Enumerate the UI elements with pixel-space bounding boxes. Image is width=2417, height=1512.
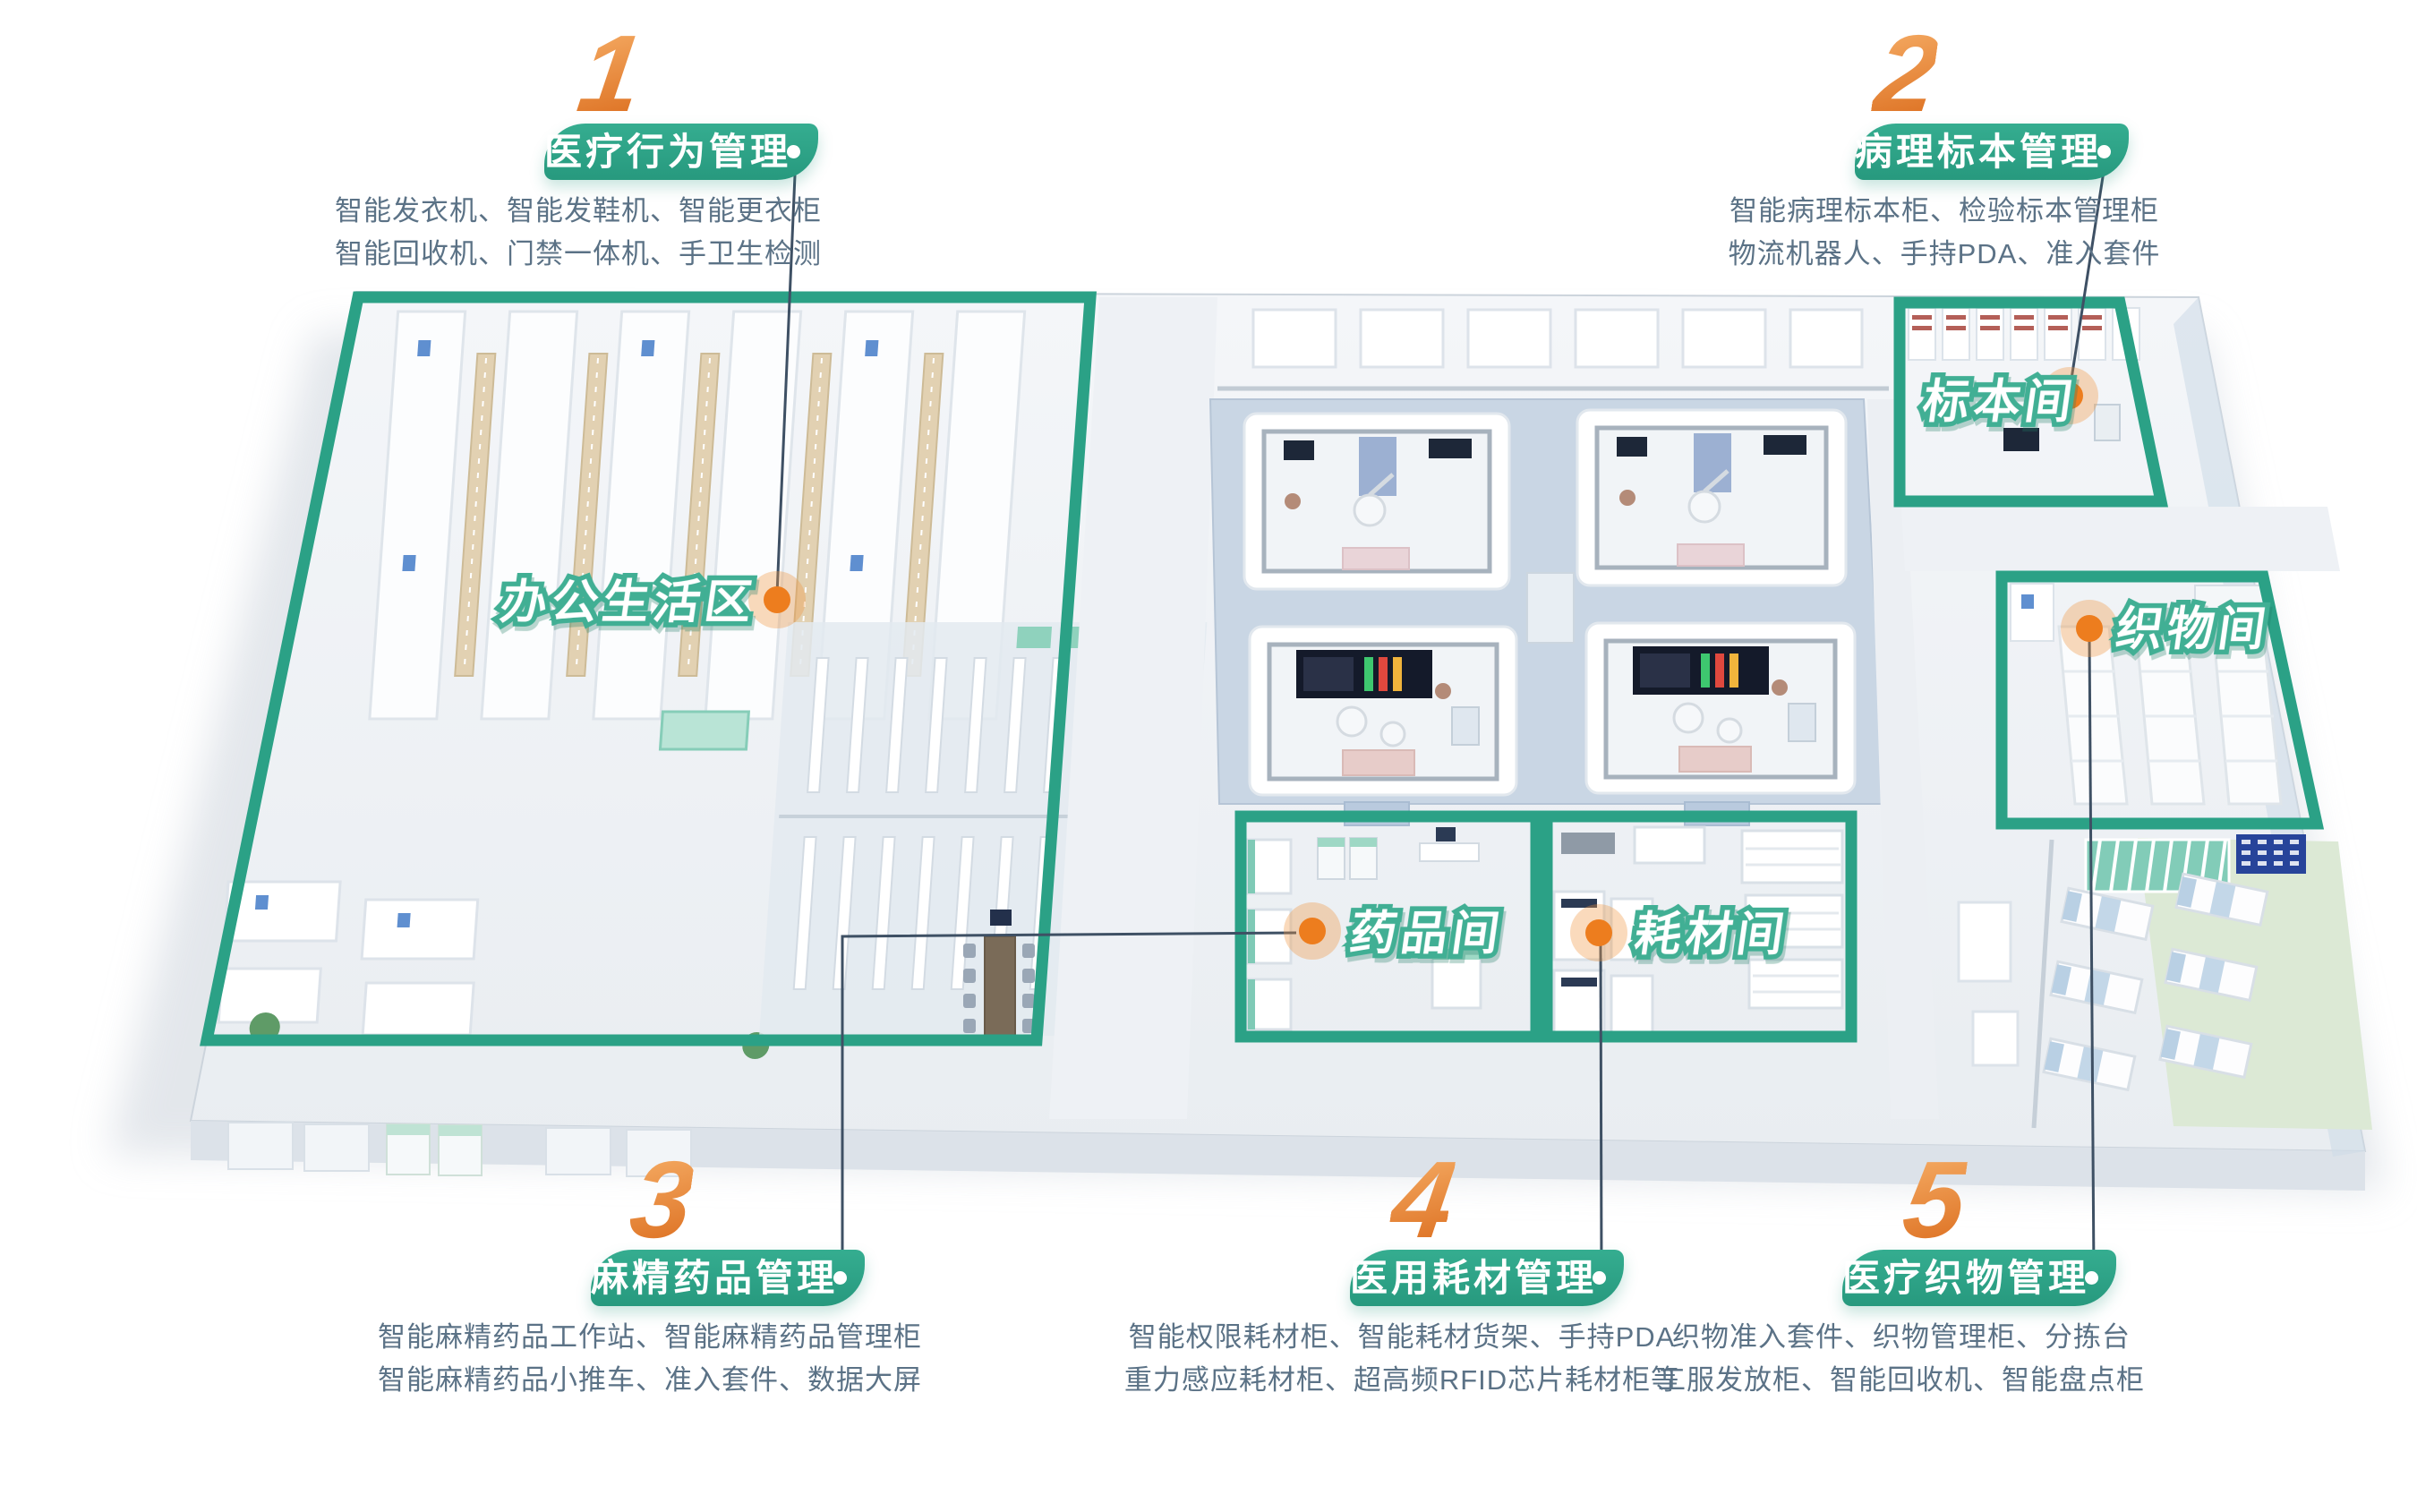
callout-5-description: 织物准入套件、织物管理柜、分拣台 工服发放柜、智能回收机、智能盘点柜 [1552,1316,2250,1402]
right-wing-corridor [1901,507,2340,571]
room-label-consumable: 耗材间 [1631,909,1791,961]
callout-5-title: 医疗织物管理 [1842,1250,2077,1306]
operating-room-block [1210,399,1885,825]
callout-3-banner: 麻精药品管理 [591,1250,865,1306]
callout-4-banner: 医用耗材管理 [1350,1250,1624,1306]
desc-line: 智能发衣机、智能发鞋机、智能更衣柜 [229,190,927,233]
callout-2-title: 病理标本管理 [1855,124,2089,180]
callout-4-dot-icon [1593,1271,1606,1285]
desc-line: 智能麻精药品小推车、准入套件、数据大屏 [301,1359,999,1402]
callout-2-dot-icon [2097,145,2111,158]
room-label-specimen: 标本间 [1919,376,2080,428]
callout-2-banner: 病理标本管理 [1855,124,2129,180]
callout-3-dot-icon [833,1271,847,1285]
callout-1-description: 智能发衣机、智能发鞋机、智能更衣柜 智能回收机、门禁一体机、手卫生检测 [229,190,927,276]
room-label-drug: 药品间 [1346,908,1507,960]
callout-3-title: 麻精药品管理 [591,1250,825,1306]
desc-line: 智能病理标本柜、检验标本管理柜 [1595,190,2293,233]
callout-2-description: 智能病理标本柜、检验标本管理柜 物流机器人、手持PDA、准入套件 [1595,190,2293,276]
callout-4-title: 医用耗材管理 [1350,1250,1584,1306]
desc-line: 智能麻精药品工作站、智能麻精药品管理柜 [301,1316,999,1359]
desc-line: 物流机器人、手持PDA、准入套件 [1595,233,2293,276]
callout-5-dot-icon [2085,1271,2098,1285]
connector-consumable [1601,938,1601,1275]
callout-1-dot-icon [787,145,800,158]
smart-hospital-floorplan-infographic: 办公生活区 标本间 织物间 药品间 耗材间 1 医疗行为管理 智能发衣机、智能发… [0,0,2417,1512]
room-label-office: 办公生活区 [497,577,759,628]
callout-1-banner: 医疗行为管理 [544,124,818,180]
desc-line: 工服发放柜、智能回收机、智能盘点柜 [1552,1359,2250,1402]
desc-line: 智能回收机、门禁一体机、手卫生检测 [229,233,927,276]
callout-3-description: 智能麻精药品工作站、智能麻精药品管理柜 智能麻精药品小推车、准入套件、数据大屏 [301,1316,999,1402]
room-marker-consumable [1570,904,1627,961]
room-label-fabric: 织物间 [2113,603,2273,655]
callout-5-banner: 医疗织物管理 [1842,1250,2116,1306]
callout-1-title: 医疗行为管理 [544,124,779,180]
room-marker-fabric [2061,600,2118,657]
room-marker-drug [1284,902,1341,960]
desc-line: 织物准入套件、织物管理柜、分拣台 [1552,1316,2250,1359]
